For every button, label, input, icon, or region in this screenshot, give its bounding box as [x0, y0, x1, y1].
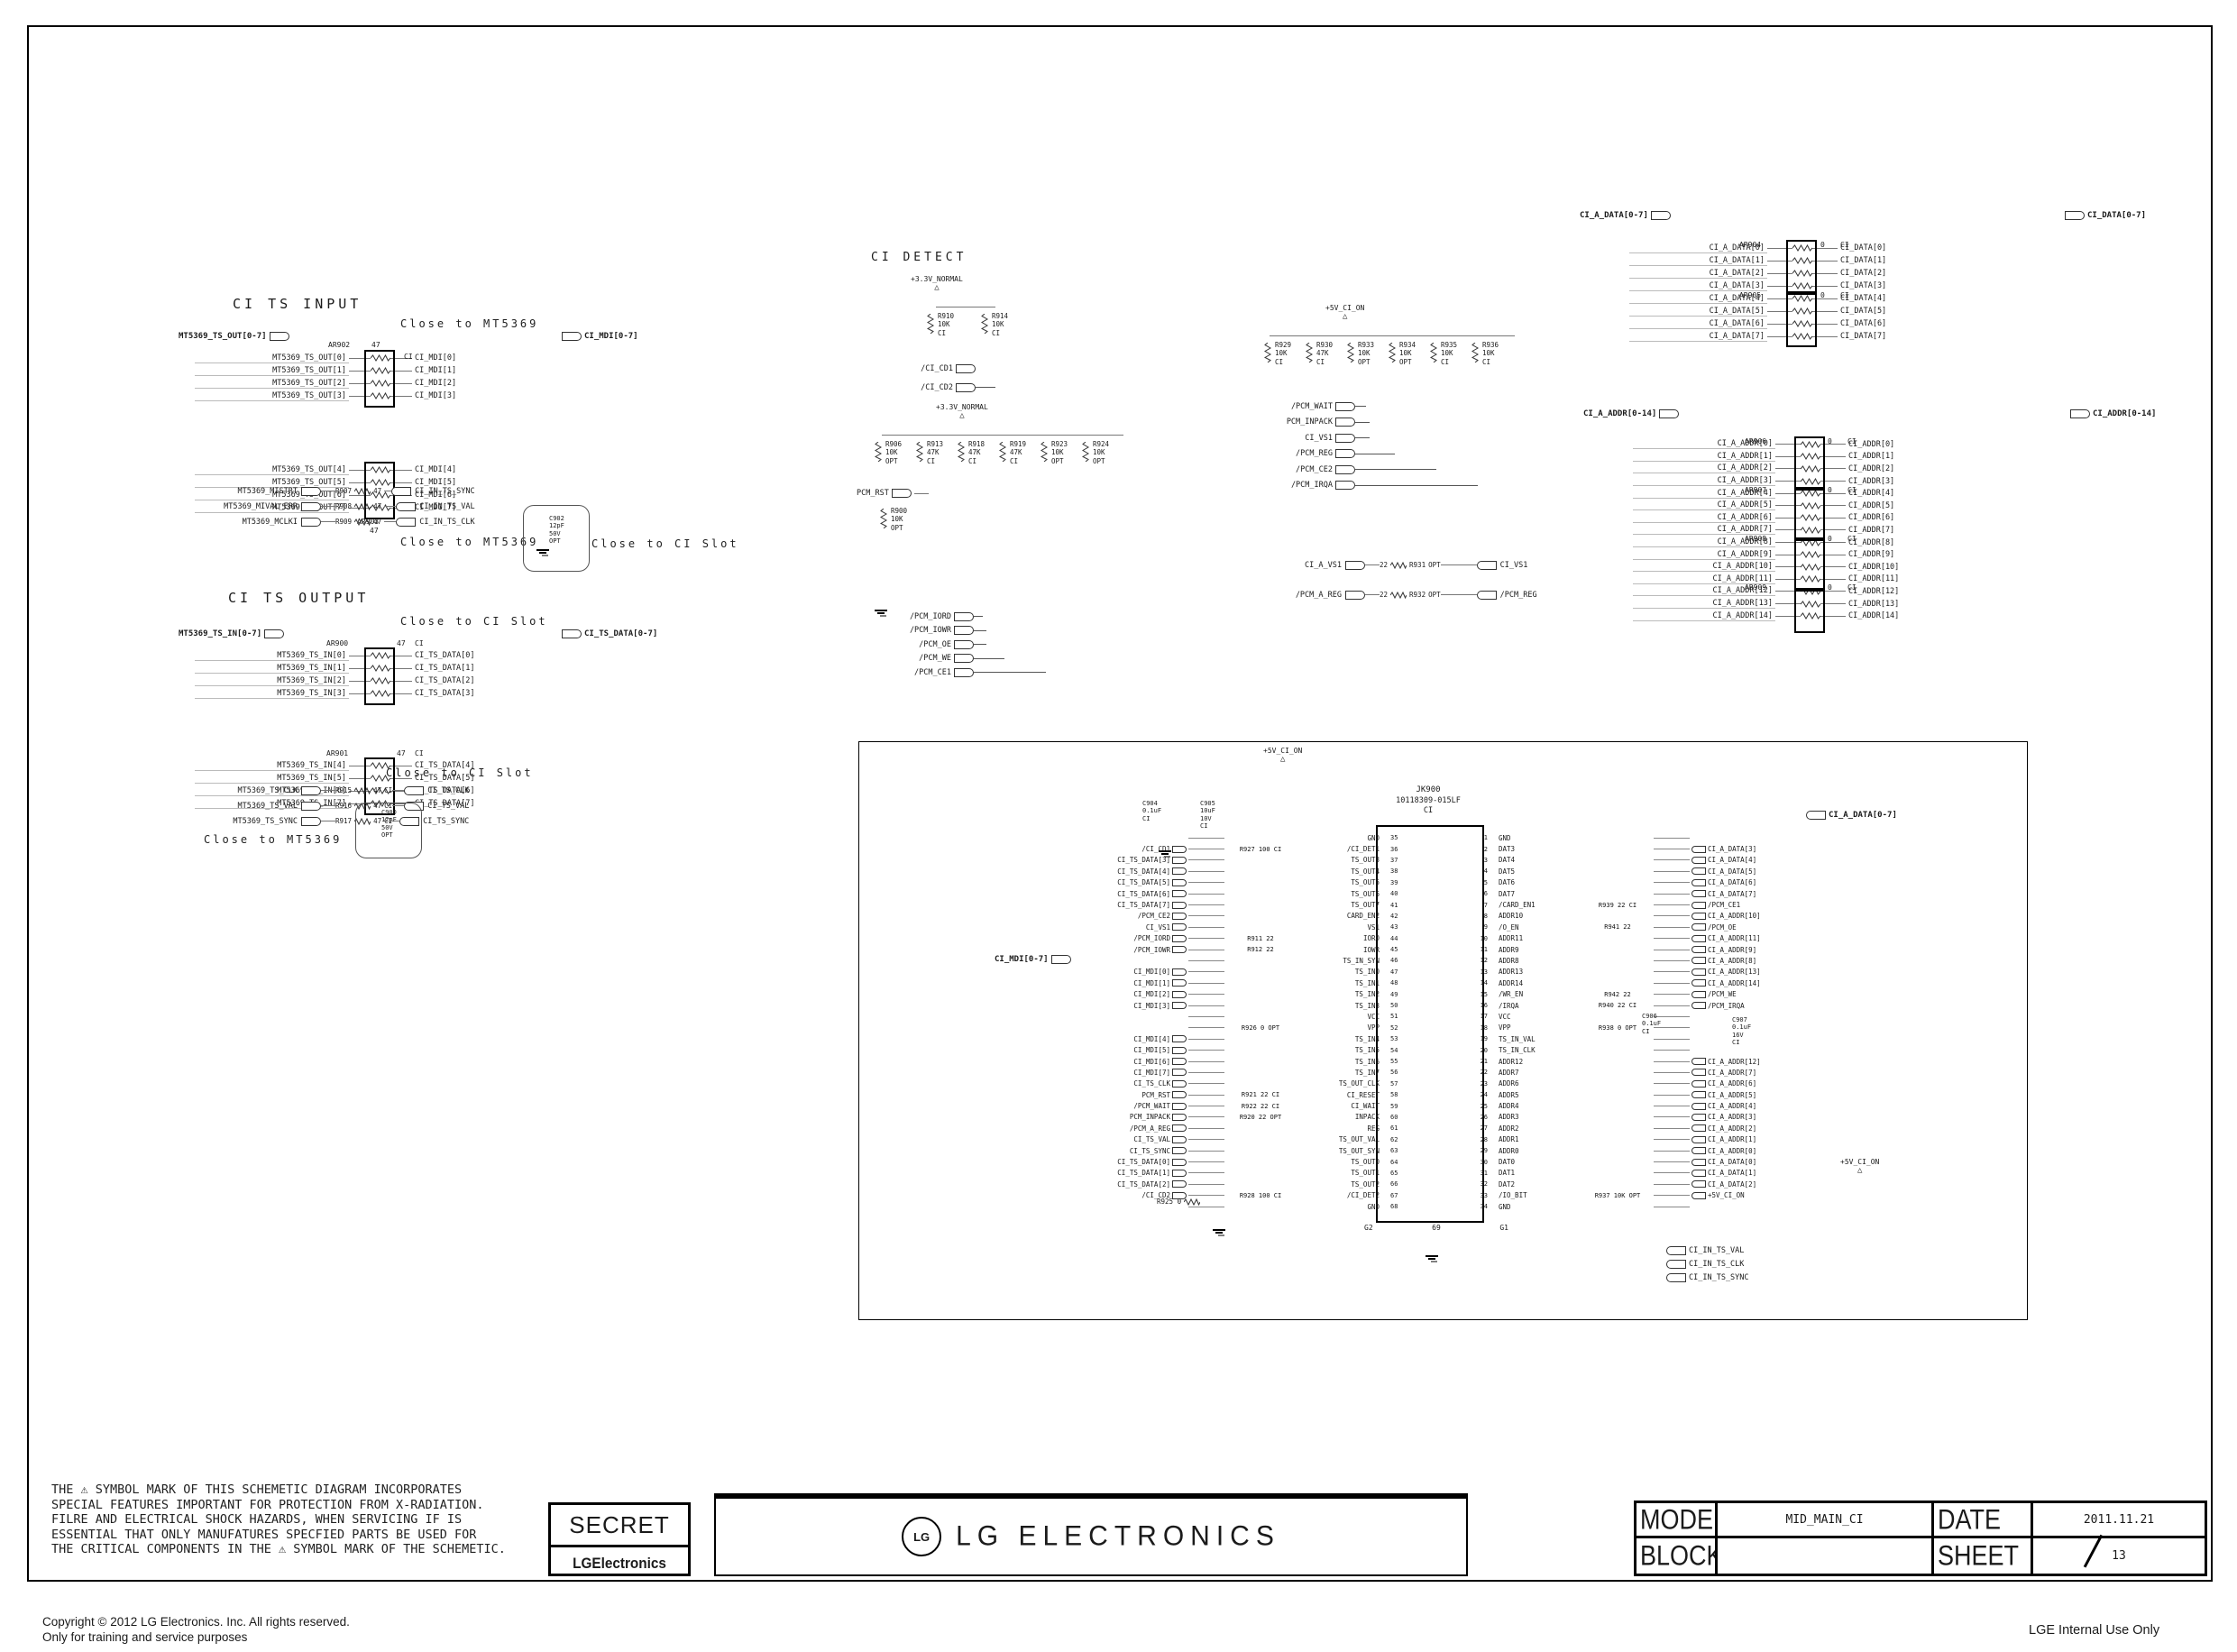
connector-icon	[1692, 1103, 1706, 1110]
resistor-icon	[354, 488, 371, 495]
power-arrow-icon: △	[959, 412, 964, 421]
decoupling-cap: C9040.1uFCI	[1128, 800, 1161, 822]
connector-icon	[1692, 1192, 1706, 1199]
ic-pin-row: PCM_RST R921 22 CI CI_RESET 58 24 ADDR5 …	[1044, 1089, 1843, 1100]
net-row: CI_A_DATA[4] CI_DATA[4]	[1629, 292, 2237, 305]
resistor-chip: R908 47	[335, 502, 384, 510]
ground-icon	[1426, 1255, 1438, 1263]
connector-icon	[1692, 879, 1706, 886]
connector-icon	[1172, 1035, 1187, 1042]
resistor-chip: R909 47	[335, 518, 384, 526]
resistor-icon	[371, 380, 390, 387]
net-row: CI_A_ADDR[14] CI_ADDR[14]	[1633, 610, 2237, 622]
series-row: MT5369_TS_SYNC R917 47CI CI_TS_SYNC	[179, 813, 469, 829]
power-arrow-icon: △	[1857, 1167, 1862, 1176]
net-row: MT5369_TS_OUT[2] CI_MDI[2]	[195, 377, 718, 390]
section-ci-ts-output: CI TS OUTPUT Close to CI Slot MT5369_TS_…	[179, 588, 701, 858]
resistor-icon	[1471, 343, 1479, 363]
ic-pin-row: CI_VS1 VS1 43 9 /O_EN R941 22 /PCM_OE	[1044, 922, 1843, 932]
close-note: Close to CI Slot	[591, 537, 739, 550]
resistor-icon	[1801, 441, 1820, 448]
pullup-resistor: R91010KCI	[923, 310, 965, 361]
resistor-chip: 22 R932OPT	[1380, 591, 1441, 599]
connector-icon	[1172, 991, 1187, 998]
ic-title: JK90010118309-015LFCI	[1338, 785, 1518, 816]
resistor-icon	[1390, 592, 1407, 599]
connector-icon	[1172, 1180, 1187, 1188]
ic-pin-row: /PCM_IOWR R912 22 IOWR 45 11 ADDR9 CI_A_…	[1044, 944, 1843, 955]
bus-connector: MT5369_TS_OUT[0-7]	[179, 332, 289, 341]
net-row: CI_A_ADDR[6] CI_ADDR[6]	[1633, 512, 2237, 525]
power-net: +3.3V_NORMAL△	[936, 404, 988, 421]
net-row: CI_A_DATA[0] CI_DATA[0]	[1629, 242, 2237, 254]
resistor-icon	[1792, 295, 1812, 302]
ic-pin-row: CI_MDI[6] TS_IN6 55 21 ADDR12 CI_A_ADDR[…	[1044, 1056, 1843, 1067]
resistor-network-group: CI_A_DATA[0] CI_DATA[0] CI_A_DATA[1] CI_…	[1629, 242, 2237, 343]
connector-icon	[1692, 1002, 1706, 1009]
connector-icon	[1051, 955, 1071, 964]
resistor-icon	[1801, 575, 1820, 583]
ic-pin-row: CI_MDI[0] TS_IN0 47 13 ADDR13 CI_A_ADDR[…	[1044, 967, 1843, 977]
close-note: Close to MT5369	[204, 833, 342, 846]
resistor-icon	[1390, 562, 1407, 569]
connector-icon	[1692, 867, 1706, 875]
date-label: DATE	[1934, 1503, 2001, 1536]
connector-icon	[301, 502, 321, 511]
connector-icon	[1692, 1159, 1706, 1166]
connector-icon	[1172, 968, 1187, 976]
series-row: MT5369_MIVAL_ERR R908 47 CI_IN_TS_VAL	[179, 499, 475, 514]
resistor-icon	[354, 519, 371, 526]
connector-icon	[1692, 968, 1706, 976]
connector-icon	[396, 518, 416, 527]
connector-icon	[1666, 1273, 1686, 1282]
net-row: CI_A_DATA[2] CI_DATA[2]	[1629, 267, 2237, 280]
net-row: CI_A_DATA[5] CI_DATA[5]	[1629, 305, 2237, 317]
resistor-icon	[1041, 442, 1048, 462]
resistor-icon	[1801, 465, 1820, 473]
resistor-icon	[371, 665, 390, 672]
resistor-icon	[880, 509, 887, 528]
power-net: +3.3V_NORMAL△	[911, 276, 963, 293]
connector-icon	[1651, 211, 1671, 220]
resistor-icon	[371, 367, 390, 374]
signal-row: /PCM_CE1	[857, 665, 1046, 680]
power-net: +5V_CI_ON△	[1840, 1159, 1879, 1176]
section-pullup-3v3: +3.3V_NORMAL△ R90610KOPT R91347KCI R9184…	[857, 404, 1181, 688]
resistor-icon	[1801, 612, 1820, 619]
resistor-icon	[371, 392, 390, 399]
connector-icon	[1172, 867, 1187, 875]
connector-icon	[1692, 1136, 1706, 1143]
ic-pin-row: /PCM_CE2 CARD_EN2 42 8 ADDR10 CI_A_ADDR[…	[1044, 911, 1843, 922]
resistor-icon	[927, 314, 934, 334]
section-main-block: +5V_CI_ON△ C9040.1uFCI C90510uF10VCI JK9…	[858, 741, 2028, 1320]
resistor-icon	[1264, 343, 1271, 363]
net-row: MT5369_TS_OUT[4] CI_MDI[4]	[195, 463, 718, 476]
connector-icon	[1172, 1159, 1187, 1166]
secret-label: SECRET	[551, 1505, 688, 1547]
pullup-resistor: R91410KCI	[977, 310, 1019, 361]
resistor-chip: R915 47CI	[335, 786, 392, 794]
resistor-icon	[1430, 343, 1437, 363]
pulldown-resistor: R90010KOPT	[876, 505, 918, 555]
bus-connector: CI_A_ADDR[0-14]	[1583, 409, 1679, 418]
net-row: MT5369_TS_IN[2] CI_TS_DATA[2]	[195, 675, 718, 687]
connector-icon	[1345, 561, 1365, 570]
connector-icon	[1692, 902, 1706, 909]
capacitor-icon	[535, 515, 545, 546]
connector-icon	[954, 612, 974, 621]
bus-connector: MT5369_TS_IN[0-7]	[179, 629, 284, 638]
section-title: CI DETECT	[871, 251, 967, 264]
bus-connector: CI_ADDR[0-14]	[2070, 409, 2156, 418]
section-ci-ts-input: CI TS INPUT Close to MT5369 MT5369_TS_OU…	[179, 296, 701, 575]
connector-icon	[1692, 1091, 1706, 1098]
net-row: CI_A_ADDR[12] CI_ADDR[12]	[1633, 585, 2237, 598]
resistor-icon	[1801, 551, 1820, 558]
pullup-resistor: R91847KCI	[954, 438, 995, 489]
pullup-resistor: R91347KCI	[912, 438, 954, 489]
connector-icon	[301, 802, 321, 811]
resistor-chip: 22 R931OPT	[1380, 561, 1441, 569]
ic-pin-row: CI_TS_DATA[6] TS_OUT6 40 6 DAT7 CI_A_DAT…	[1044, 888, 1843, 899]
bus-connector: CI_MDI[0-7]	[995, 955, 1071, 964]
ic-pin-row: /PCM_WAIT R922 22 CI CI_WAIT 59 25 ADDR4…	[1044, 1100, 1843, 1111]
bus-connector: CI_MDI[0-7]	[562, 332, 638, 341]
resistor-icon	[371, 677, 390, 684]
sheet-value: 13	[2033, 1549, 2205, 1563]
signal-row: /CI_CD2	[858, 378, 995, 397]
resistor-icon	[981, 314, 988, 334]
power-arrow-icon: △	[934, 284, 939, 293]
signal-row: /PCM_IRQA	[1242, 478, 1478, 494]
pullup-resistor: R93310KOPT	[1343, 339, 1385, 390]
ic-pin-row: CI_TS_DATA[5] TS_OUT5 39 5 DAT6 CI_A_DAT…	[1044, 877, 1843, 888]
connector-icon	[1172, 1124, 1187, 1132]
company-banner: LG LG ELECTRONICS	[714, 1493, 1468, 1576]
net-row: CI_A_ADDR[7] CI_ADDR[7]	[1633, 524, 2237, 537]
connector-icon	[562, 332, 582, 341]
connector-icon	[301, 786, 321, 795]
connector-icon	[1172, 1069, 1187, 1076]
decoupling-cap: C90510uF10VCI	[1186, 800, 1215, 831]
resistor-chip: R907 47	[335, 487, 384, 495]
ic-pin-row: /PCM_IORD R911 22 IORD 44 10 ADDR11 CI_A…	[1044, 933, 1843, 944]
net-row: CI_A_ADDR[13] CI_ADDR[13]	[1633, 598, 2237, 610]
connector-icon	[1172, 1170, 1187, 1177]
resistor-icon	[1801, 478, 1820, 485]
connector-icon	[1335, 434, 1355, 443]
signal-row: /CI_CD1	[858, 359, 995, 378]
option-cap-box: C90212pF50VOPT	[523, 505, 590, 572]
ground-icon	[1213, 1229, 1225, 1237]
pullup-resistor: R92310KOPT	[1037, 438, 1078, 489]
power-arrow-icon: △	[1343, 313, 1347, 322]
series-row: MT5369_TS_CLK R915 47CI CI_TS_CLK	[179, 783, 469, 798]
connector-icon	[1692, 1170, 1706, 1177]
resistor-icon	[1801, 502, 1820, 509]
resistor-icon	[958, 442, 965, 462]
resistor-icon	[1801, 588, 1820, 595]
net-row: CI_A_ADDR[1] CI_ADDR[1]	[1633, 451, 2237, 463]
resistor-icon	[1306, 343, 1313, 363]
connector-icon	[1666, 1246, 1686, 1255]
sheet-label: SHEET	[1934, 1540, 2019, 1573]
net-row: MT5369_TS_IN[0] CI_TS_DATA[0]	[195, 649, 718, 662]
resistor-icon	[371, 690, 390, 697]
signal-row: PCM_INPACK	[1242, 415, 1478, 431]
connector-icon	[1692, 935, 1706, 942]
signal-row: /PCM_IORD	[857, 610, 1046, 624]
connector-icon	[1172, 890, 1187, 897]
connector-icon	[1692, 857, 1706, 864]
series-resistor-rows: MT5369_TS_CLK R915 47CI CI_TS_CLK MT5369…	[179, 783, 469, 829]
connector-icon	[1477, 591, 1497, 600]
connector-icon	[1692, 913, 1706, 920]
ic-pin-row: GND 35 1 GND	[1044, 832, 1843, 843]
connector-icon	[1172, 1103, 1187, 1110]
connector-icon	[1692, 1058, 1706, 1065]
connector-icon	[956, 383, 976, 392]
x-radiation-disclaimer: THE ⚠ SYMBOL MARK OF THIS SCHEMETIC DIAG…	[51, 1482, 506, 1557]
connector-icon	[1172, 1002, 1187, 1009]
jumper-row: CI_A_VS1 22 R931OPT CI_VS1	[1242, 550, 1537, 580]
ic-pin-row: CI_TS_DATA[4] TS_OUT4 38 4 DAT5 CI_A_DAT…	[1044, 866, 1843, 876]
connector-icon	[954, 654, 974, 663]
ic-pin-row: CI_TS_SYNC TS_OUT_SYN 63 29 ADDR0 CI_A_A…	[1044, 1145, 1843, 1156]
ic-pin-row: /PCM_A_REG REG 61 27 ADDR2 CI_A_ADDR[2]	[1044, 1123, 1843, 1133]
section-ci-detect: CI DETECT +3.3V_NORMAL△ R91010KCI R91410…	[858, 251, 1111, 408]
net-row: CI_A_ADDR[3] CI_ADDR[3]	[1633, 475, 2237, 488]
close-note: Close to CI Slot	[400, 615, 548, 628]
section-pullup-5v: +5V_CI_ON△ R92910KCI R93047KCI R93310KOP…	[1242, 305, 1585, 620]
resistor-icon	[1792, 282, 1812, 289]
resistor-network-group: MT5369_TS_OUT[0] CI_MDI[0] MT5369_TS_OUT…	[195, 352, 718, 402]
net-row: CI_A_ADDR[4] CI_ADDR[4]	[1633, 487, 2237, 500]
resistor-icon	[1792, 333, 1812, 340]
resistor-icon	[354, 787, 371, 794]
connector-icon	[1692, 1147, 1706, 1154]
pullup-resistor: R91947KCI	[995, 438, 1037, 489]
bus-connector: CI_TS_DATA[0-7]	[562, 629, 657, 638]
capacitor-icon	[1186, 800, 1196, 831]
resistor-icon	[371, 354, 390, 362]
resistor-icon	[1082, 442, 1089, 462]
pullup-resistor: R90610KOPT	[871, 438, 912, 489]
resistor-chip: R925 0	[1157, 1198, 1200, 1206]
connector-icon	[1172, 1058, 1187, 1065]
connector-icon	[1172, 1136, 1187, 1143]
power-net: +5V_CI_ON△	[1263, 748, 1302, 765]
signal-row: /PCM_CE2	[1242, 462, 1478, 478]
ic-pin-row: CI_MDI[2] TS_IN2 49 15 /WR_EN R942 22 /P…	[1044, 988, 1843, 999]
connector-icon	[1692, 1069, 1706, 1076]
connector-icon	[2065, 211, 2085, 220]
connector-icon	[1692, 923, 1706, 931]
power-net: +5V_CI_ON△	[1325, 305, 1364, 322]
connector-icon	[1692, 1180, 1706, 1188]
resistor-icon	[875, 442, 882, 462]
net-row: CI_A_ADDR[9] CI_ADDR[9]	[1633, 548, 2237, 561]
ic-pin-row: CI_TS_DATA[0] TS_OUT0 64 30 DAT0 CI_A_DA…	[1044, 1156, 1843, 1167]
resistor-icon	[1792, 270, 1812, 277]
connector-icon	[1172, 1114, 1187, 1121]
resistor-icon	[1184, 1198, 1200, 1206]
company-name: LG ELECTRONICS	[956, 1520, 1280, 1553]
pullup-resistor: R93410KOPT	[1385, 339, 1426, 390]
capacitor-icon	[1128, 800, 1139, 822]
section-title: CI TS INPUT	[233, 296, 362, 312]
capacitor-icon	[367, 809, 378, 840]
pull-signal: PCM_RST	[857, 489, 929, 498]
resistor-icon	[354, 503, 371, 510]
connector-icon	[954, 640, 974, 649]
resistor-network-group: MT5369_TS_IN[0] CI_TS_DATA[0] MT5369_TS_…	[195, 649, 718, 700]
resistor-icon	[1792, 307, 1812, 315]
net-row: CI_A_ADDR[10] CI_ADDR[10]	[1633, 561, 2237, 574]
connector-icon	[1172, 923, 1187, 931]
ic-pin-row: CI_TS_DATA[2] TS_OUT2 66 32 DAT2 CI_A_DA…	[1044, 1179, 1843, 1189]
connector-icon	[1172, 946, 1187, 953]
connector-icon	[1806, 811, 1826, 820]
bus-connector: CI_A_DATA[0-7]	[1580, 211, 1671, 220]
net-row: CI_A_ADDR[11] CI_ADDR[11]	[1633, 574, 2237, 586]
net-row: CI_A_DATA[1] CI_DATA[1]	[1629, 254, 2237, 267]
connector-icon	[1172, 1147, 1187, 1154]
ic-bottom-pins: G269G1	[1364, 1224, 1508, 1232]
output-connector: CI_IN_TS_CLK	[1666, 1257, 1749, 1271]
date-value: 2011.11.21	[2033, 1513, 2205, 1527]
connector-icon	[1172, 857, 1187, 864]
connector-icon	[1692, 846, 1706, 853]
net-row: CI_A_DATA[7] CI_DATA[7]	[1629, 330, 2237, 343]
decoupling-cap: C9070.1uF16VCI	[1718, 1016, 1751, 1047]
power-arrow-icon: △	[1280, 756, 1285, 765]
connector-icon	[1172, 846, 1187, 853]
connector-icon	[954, 626, 974, 635]
ic-pin-row: CI_MDI[3] TS_IN3 50 16 /IRQA R940 22 CI …	[1044, 1000, 1843, 1011]
close-note: Close to CI Slot	[386, 766, 534, 779]
resistor-icon	[371, 466, 390, 473]
connector-icon	[264, 629, 284, 638]
block-label: BLOCK	[1636, 1540, 1718, 1573]
internal-use-note: LGE Internal Use Only	[2029, 1623, 2159, 1638]
connector-icon	[1692, 957, 1706, 964]
ic-pin-row: CI_TS_CLK TS_OUT_CLK 57 23 ADDR6 CI_A_AD…	[1044, 1078, 1843, 1089]
secret-stamp: SECRET LGElectronics	[548, 1502, 691, 1576]
signal-row: /PCM_WAIT	[1242, 399, 1478, 415]
ic-pin-row: CI_MDI[7] TS_IN7 56 22 ADDR7 CI_A_ADDR[7…	[1044, 1067, 1843, 1078]
connector-icon	[892, 489, 912, 498]
connector-icon	[562, 629, 582, 638]
signal-row: /PCM_WE	[857, 652, 1046, 666]
title-block: MODEL MID_MAIN_CI DATE 2011.11.21 BLOCK …	[1634, 1501, 2207, 1576]
pullup-resistor: R92410KOPT	[1078, 438, 1120, 489]
pullup-resistor: R92910KCI	[1261, 339, 1302, 390]
resistor-icon	[1801, 514, 1820, 521]
resistor-icon	[1801, 490, 1820, 497]
connector-icon	[1172, 879, 1187, 886]
ic-pin-row: CI_TS_VAL TS_OUT_VAL 62 28 ADDR1 CI_A_AD…	[1044, 1134, 1843, 1145]
connector-icon	[301, 817, 321, 826]
pullup-resistor: R93047KCI	[1302, 339, 1343, 390]
connector-icon	[1172, 979, 1187, 987]
ic-pin-row: CI_TS_DATA[1] TS_OUT1 65 31 DAT1 CI_A_DA…	[1044, 1168, 1843, 1179]
net-row: CI_A_ADDR[8] CI_ADDR[8]	[1633, 537, 2237, 549]
connector-icon	[1335, 481, 1355, 490]
resistor-icon	[1792, 320, 1812, 327]
connector-icon	[1692, 1114, 1706, 1121]
signal-row: /PCM_REG	[1242, 446, 1478, 463]
bus-connector: CI_DATA[0-7]	[2065, 211, 2146, 220]
connector-icon	[1692, 946, 1706, 953]
resistor-icon	[1792, 257, 1812, 264]
signal-row: /PCM_IOWR	[857, 624, 1046, 638]
connector-icon	[1692, 979, 1706, 987]
lg-electronics-small: LGElectronics	[558, 1547, 682, 1579]
resistor-icon	[916, 442, 923, 462]
ic-pin-row: CI_MDI[1] TS_IN1 48 14 ADDR14 CI_A_ADDR[…	[1044, 977, 1843, 988]
connector-icon	[301, 518, 321, 527]
resistor-network-group: CI_A_ADDR[0] CI_ADDR[0] CI_A_ADDR[1] CI_…	[1633, 438, 2237, 622]
model-label: MODEL	[1636, 1503, 1718, 1536]
ic-pin-row: PCM_INPACK R920 22 OPT INPACK 60 26 ADDR…	[1044, 1112, 1843, 1123]
ic-pin-row: /CI_CD1 R927 100 CI /CI_DET1 36 2 DAT3 C…	[1044, 843, 1843, 854]
net-row: CI_A_DATA[3] CI_DATA[3]	[1629, 280, 2237, 292]
close-note: Close to MT5369	[400, 536, 538, 548]
connector-icon	[1477, 561, 1497, 570]
connector-icon	[1172, 1091, 1187, 1098]
model-value: MID_MAIN_CI	[1718, 1513, 1931, 1527]
connector-icon	[954, 668, 974, 677]
output-connector: CI_IN_TS_VAL	[1666, 1244, 1749, 1257]
connector-icon	[396, 502, 416, 511]
section-data-bus: CI_A_DATA[0-7] CI_DATA[0-7] CI_A_DATA[0]…	[1580, 206, 2193, 386]
net-row: MT5369_TS_OUT[1] CI_MDI[1]	[195, 364, 718, 377]
series-row: MT5369_TS_VAL R916 47CI CI_TS_VAL	[179, 798, 469, 813]
connector-icon	[1345, 591, 1365, 600]
connector-icon	[1692, 890, 1706, 897]
pullup-resistor: R93510KCI	[1426, 339, 1468, 390]
decoupling-cap: C9060.1uFCI	[1627, 1013, 1661, 1035]
signal-row: /PCM_OE	[857, 638, 1046, 652]
connector-icon	[956, 364, 976, 373]
series-row: MT5369_MCLKI R909 47 CI_IN_TS_CLK	[179, 514, 475, 529]
connector-icon	[1659, 409, 1679, 418]
capacitor-icon	[1627, 1013, 1638, 1035]
lg-logo-icon: LG	[902, 1517, 941, 1556]
section-title: CI TS OUTPUT	[228, 590, 369, 606]
resistor-icon	[1347, 343, 1354, 363]
resistor-icon	[1801, 539, 1820, 546]
capacitor-icon	[1718, 1016, 1728, 1047]
signal-row: CI_VS1	[1242, 430, 1478, 446]
resistor-icon	[1792, 244, 1812, 252]
section-addr-bus: CI_A_ADDR[0-14] CI_ADDR[0-14] CI_A_ADDR[…	[1583, 404, 2205, 647]
ic-pin-row: CI_TS_DATA[3] TS_OUT3 37 3 DAT4 CI_A_DAT…	[1044, 855, 1843, 866]
net-row: CI_A_ADDR[5] CI_ADDR[5]	[1633, 500, 2237, 512]
connector-icon	[391, 487, 411, 496]
connector-icon	[1335, 449, 1355, 458]
resistor-icon	[1801, 527, 1820, 534]
option-cap-box: C90012pF50VOPT	[355, 803, 422, 858]
connector-icon	[1335, 465, 1355, 474]
connector-icon	[1172, 1080, 1187, 1088]
series-resistor-rows: MT5369_MISTRT R907 47 CI_IN_TS_SYNC MT53…	[179, 483, 475, 529]
connector-icon	[1335, 402, 1355, 411]
resistor-icon	[1389, 343, 1396, 363]
